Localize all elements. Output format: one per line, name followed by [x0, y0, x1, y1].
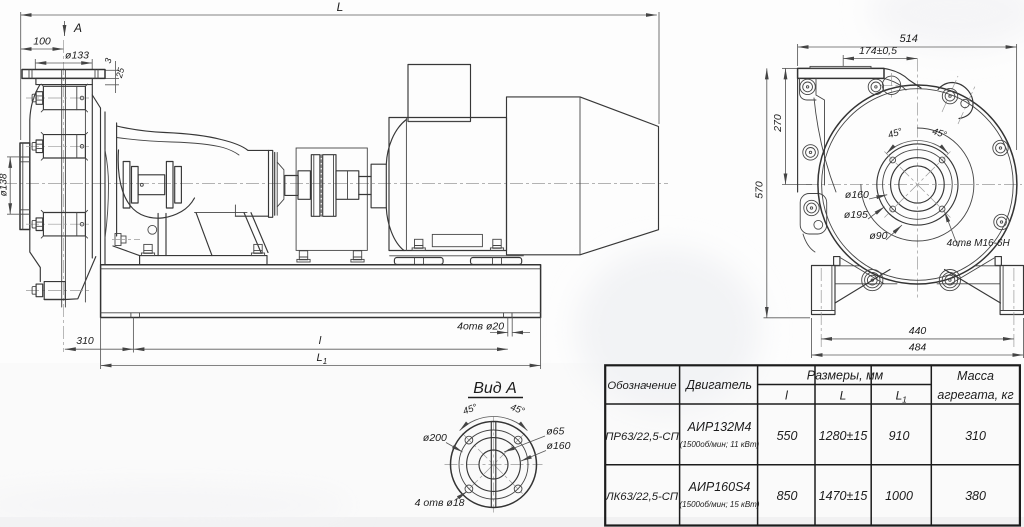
svg-text:ø160: ø160 — [845, 189, 869, 201]
svg-text:Двигатель: Двигатель — [684, 378, 752, 392]
svg-text:ø200: ø200 — [423, 432, 447, 444]
svg-text:L: L — [316, 352, 322, 364]
svg-text:550: 550 — [777, 429, 798, 443]
svg-text:L: L — [840, 389, 847, 403]
svg-text:ЛК63/22,5-СП: ЛК63/22,5-СП — [605, 491, 679, 503]
svg-text:ПР63/22,5-СП: ПР63/22,5-СП — [605, 431, 679, 443]
svg-text:4отв ø20: 4отв ø20 — [457, 321, 504, 333]
svg-text:100: 100 — [33, 36, 51, 48]
svg-text:Масса: Масса — [957, 369, 994, 383]
svg-text:Размеры, мм: Размеры, мм — [807, 369, 884, 383]
svg-text:(1500об/мин; 15 кВт): (1500об/мин; 15 кВт) — [680, 500, 760, 509]
svg-text:514: 514 — [900, 33, 918, 45]
svg-text:А: А — [73, 21, 82, 35]
svg-text:ø160: ø160 — [547, 440, 571, 452]
svg-text:570: 570 — [754, 181, 766, 199]
svg-text:270: 270 — [772, 114, 784, 133]
svg-text:440: 440 — [909, 325, 927, 337]
svg-text:ø90: ø90 — [869, 230, 887, 242]
svg-text:агрегата, кг: агрегата, кг — [937, 388, 1013, 402]
svg-text:АИР160S4: АИР160S4 — [688, 480, 751, 494]
svg-text:(1500об/мин; 11 кВт): (1500об/мин; 11 кВт) — [680, 440, 760, 449]
svg-text:1: 1 — [323, 357, 327, 366]
svg-text:l: l — [785, 389, 788, 403]
svg-text:Обозначение: Обозначение — [607, 380, 676, 392]
svg-text:ø65: ø65 — [546, 426, 564, 438]
svg-text:1000: 1000 — [885, 489, 913, 503]
svg-text:1280±15: 1280±15 — [819, 429, 868, 443]
svg-text:310: 310 — [76, 335, 94, 347]
svg-text:910: 910 — [889, 429, 910, 443]
svg-text:484: 484 — [909, 342, 927, 354]
svg-text:АИР132М4: АИР132М4 — [687, 420, 752, 434]
svg-text:850: 850 — [777, 489, 798, 503]
svg-text:1470±15: 1470±15 — [819, 489, 868, 503]
svg-text:ø138: ø138 — [0, 173, 10, 196]
svg-text:ø195: ø195 — [844, 209, 868, 221]
svg-text:1: 1 — [902, 395, 907, 405]
svg-text:L: L — [337, 0, 344, 14]
svg-text:Вид А: Вид А — [473, 380, 517, 397]
svg-text:380: 380 — [965, 489, 986, 503]
svg-text:ø133: ø133 — [65, 50, 89, 62]
svg-text:174±0,5: 174±0,5 — [859, 45, 897, 57]
svg-text:310: 310 — [965, 429, 986, 443]
